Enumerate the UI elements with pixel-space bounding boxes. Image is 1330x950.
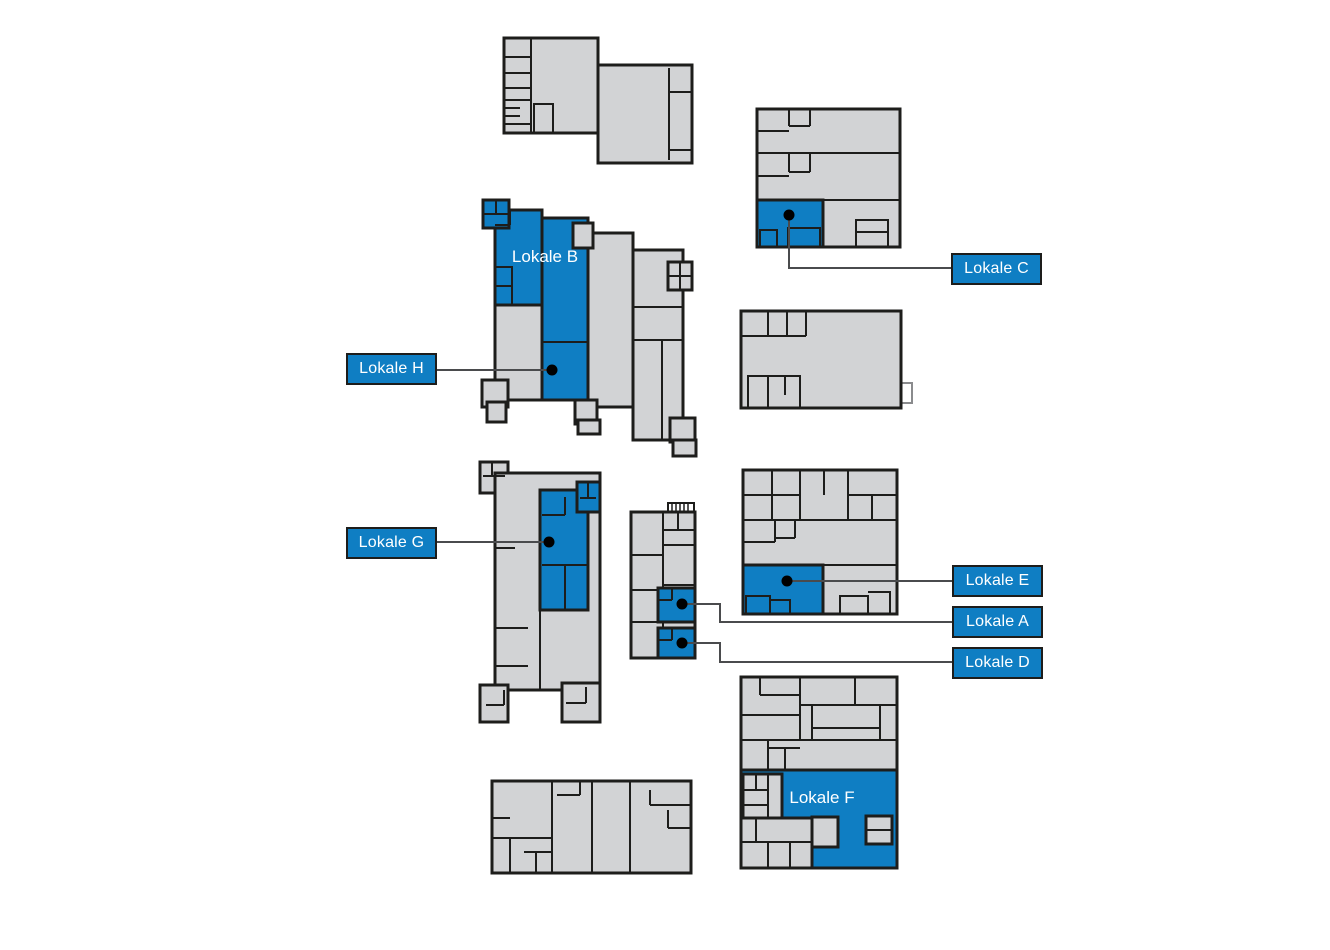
marker-dot-lokale-d: [677, 638, 688, 649]
region-lokale-e[interactable]: [743, 565, 823, 614]
building-center-small: [631, 503, 695, 658]
marker-dot-lokale-h: [547, 365, 558, 376]
building-east-hall: [741, 311, 912, 408]
facility-site-map: Lokale B Lokale F Lokale C Lokale H Loka…: [0, 0, 1330, 950]
marker-dot-lokale-e: [782, 576, 793, 587]
building-southeast: [741, 677, 897, 868]
floorplan-svg: [0, 0, 1330, 950]
building-northwest: [504, 38, 692, 163]
building-northeast: [757, 109, 900, 247]
label-lokale-c[interactable]: Lokale C: [951, 253, 1042, 285]
building-west-complex: [482, 200, 696, 456]
label-lokale-a[interactable]: Lokale A: [952, 606, 1043, 638]
label-lokale-g[interactable]: Lokale G: [346, 527, 437, 559]
marker-dot-lokale-a: [677, 599, 688, 610]
building-southwest: [480, 462, 600, 722]
label-lokale-d[interactable]: Lokale D: [952, 647, 1043, 679]
label-lokale-e[interactable]: Lokale E: [952, 565, 1043, 597]
building-east-mid: [743, 470, 897, 614]
marker-dot-lokale-c: [784, 210, 795, 221]
building-south-hall: [492, 781, 691, 873]
marker-dot-lokale-g: [544, 537, 555, 548]
leader-line-lokale-d: [682, 643, 952, 662]
label-lokale-h[interactable]: Lokale H: [346, 353, 437, 385]
